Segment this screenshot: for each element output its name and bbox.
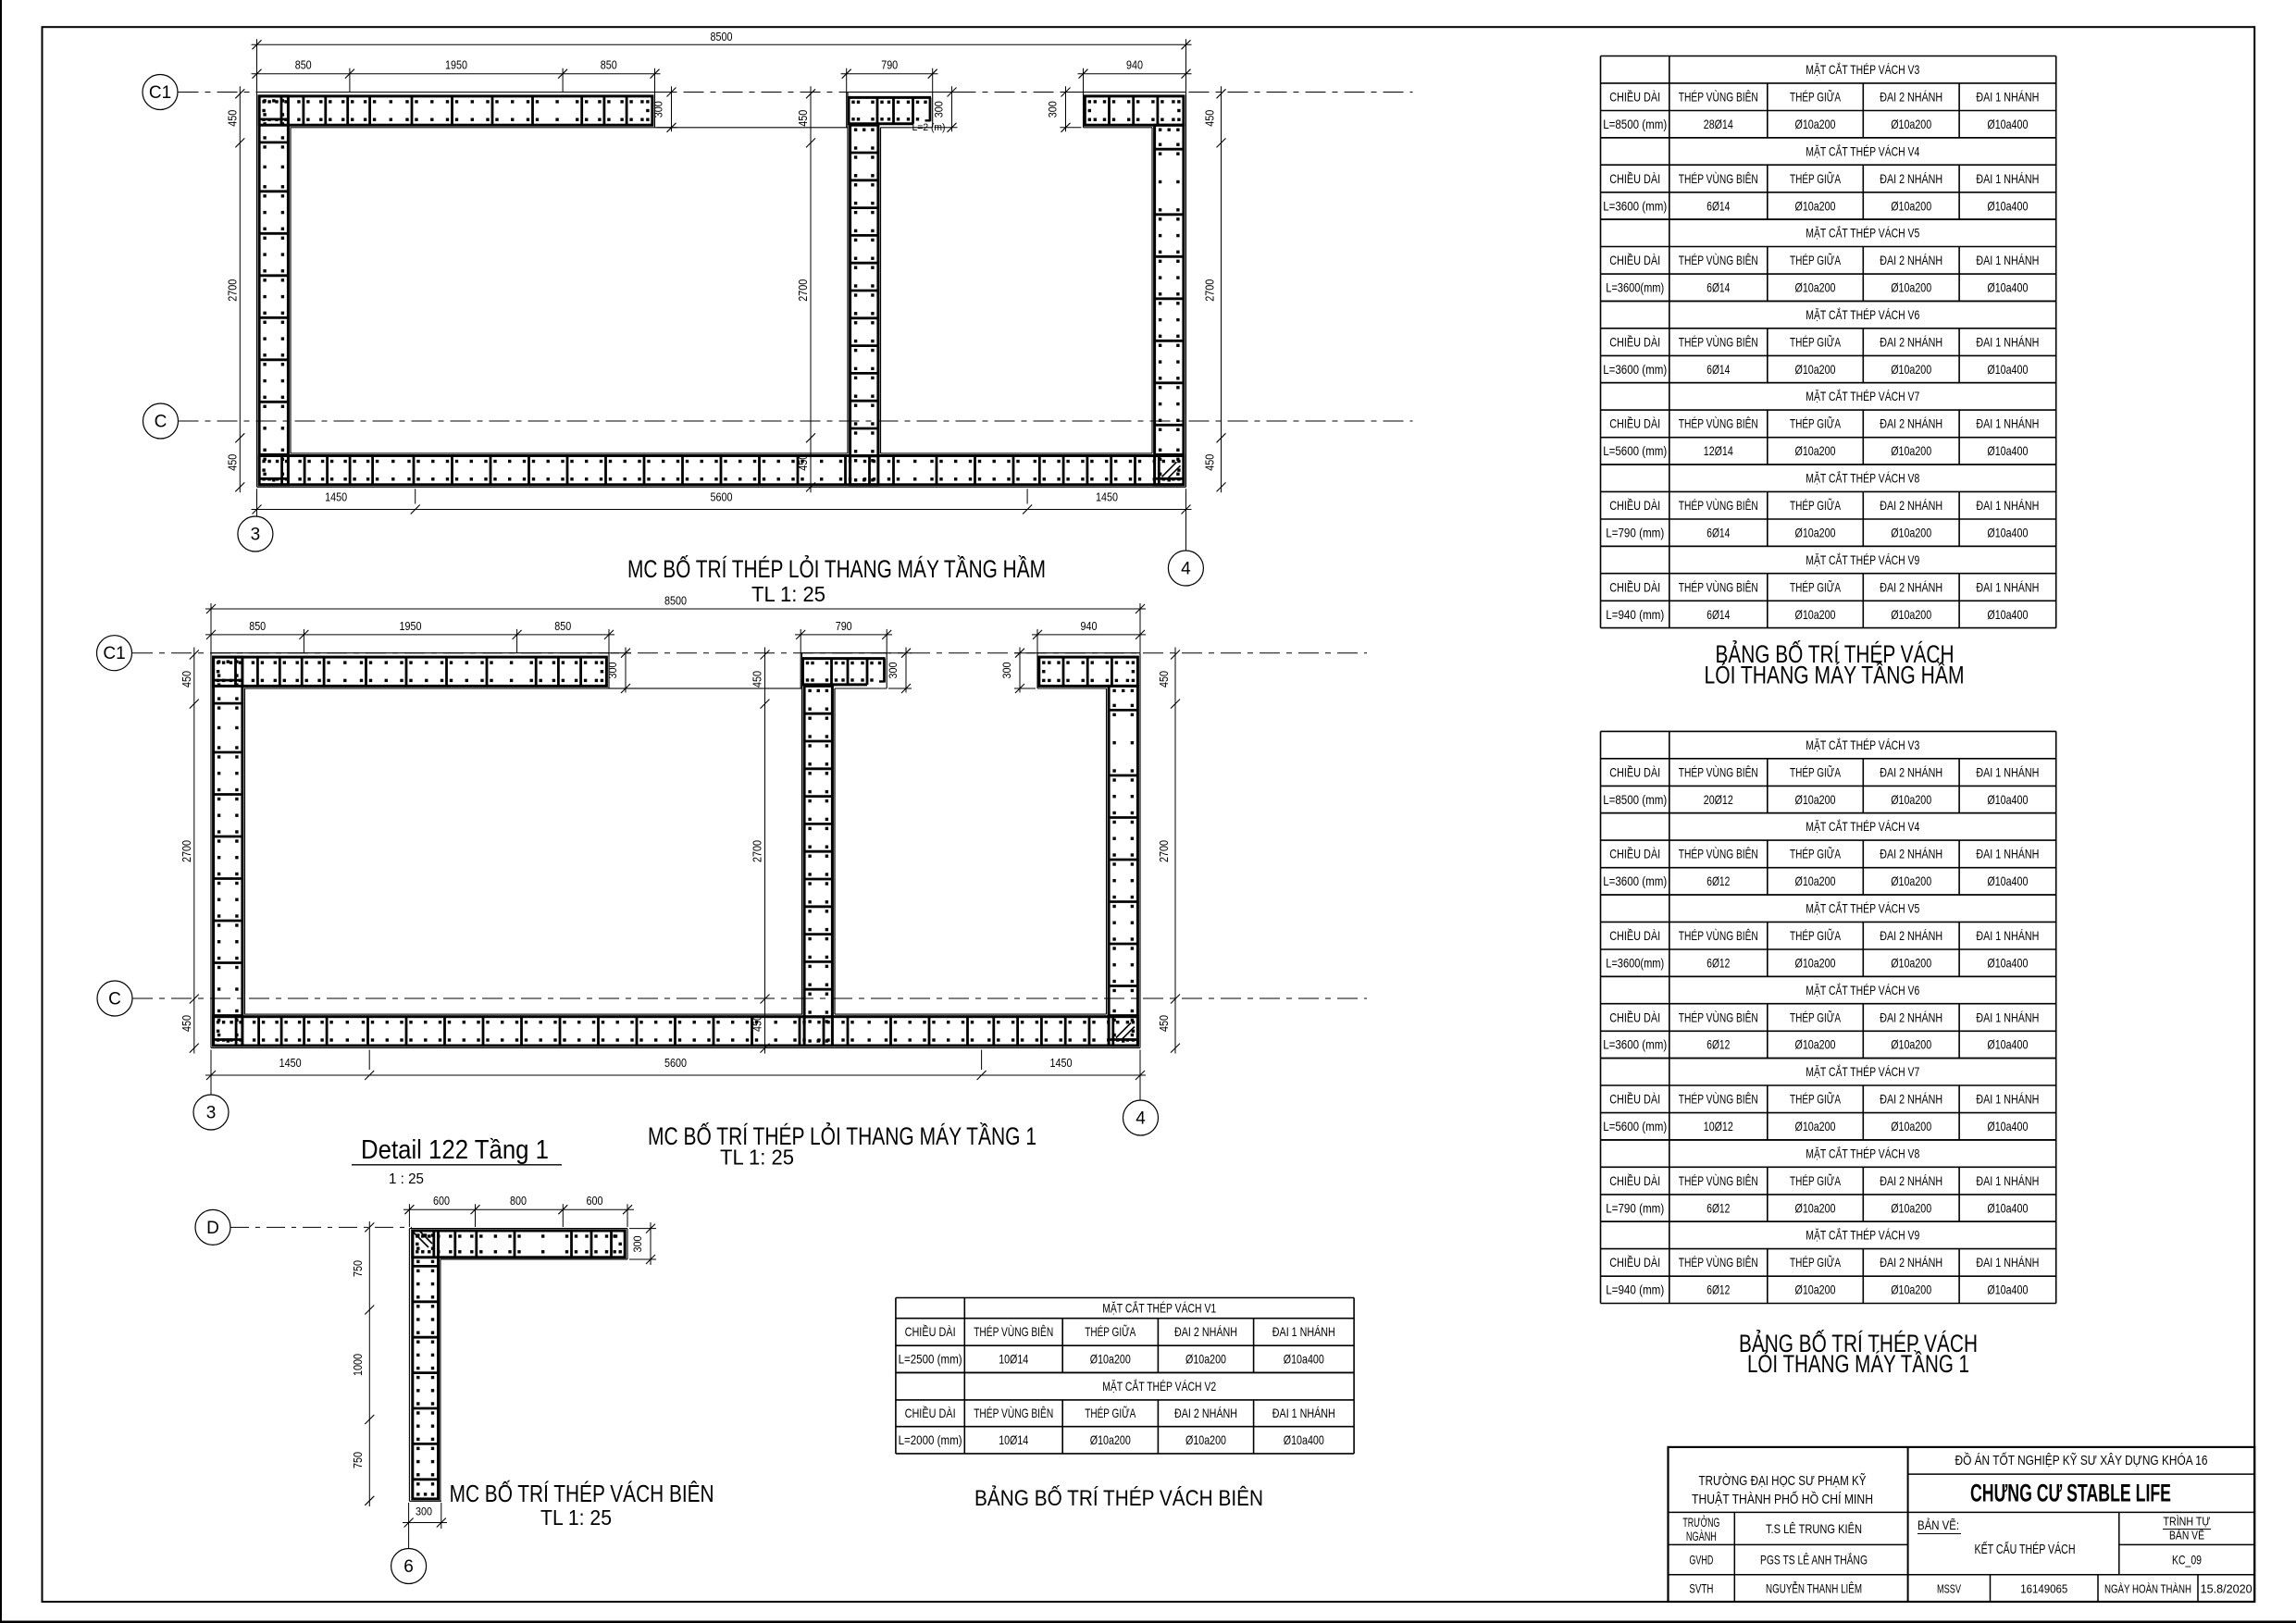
svg-text:TL 1: 25: TL 1: 25 [720,1146,794,1170]
svg-text:Ø10a200: Ø10a200 [1891,362,1931,377]
svg-text:L=2 (m): L=2 (m) [912,122,946,133]
svg-text:Ø10a200: Ø10a200 [1795,955,1836,970]
svg-text:CHIỀU DÀI: CHIỀU DÀI [1609,171,1660,186]
svg-text:16149065: 16149065 [2020,1583,2067,1596]
svg-text:2700: 2700 [180,840,193,862]
svg-text:8500: 8500 [711,31,733,43]
svg-text:ĐAI 2 NHÁNH: ĐAI 2 NHÁNH [1880,498,1942,513]
svg-text:MẶT CẮT THÉP VÁCH V6: MẶT CẮT THÉP VÁCH V6 [1806,982,1919,997]
svg-text:ĐAI 1 NHÁNH: ĐAI 1 NHÁNH [1976,579,2039,594]
svg-text:MẶT CẮT THÉP VÁCH V7: MẶT CẮT THÉP VÁCH V7 [1806,388,1919,403]
svg-text:MC BỐ TRÍ THÉP LỎI THANG MÁY T: MC BỐ TRÍ THÉP LỎI THANG MÁY TẦNG 1 [648,1121,1036,1150]
svg-text:940: 940 [1126,59,1143,72]
svg-text:THÉP GIỮA: THÉP GIỮA [1790,90,1841,105]
svg-text:750: 750 [352,1260,365,1277]
svg-text:Ø10a400: Ø10a400 [1987,198,2028,213]
svg-text:C1: C1 [149,83,171,103]
svg-text:THÉP VÙNG BIÊN: THÉP VÙNG BIÊN [974,1406,1053,1420]
svg-text:MẶT CẮT THÉP VÁCH V8: MẶT CẮT THÉP VÁCH V8 [1806,470,1919,486]
svg-text:Ø10a200: Ø10a200 [1795,1200,1836,1215]
svg-text:ĐAI 1 NHÁNH: ĐAI 1 NHÁNH [1976,1092,2039,1107]
svg-text:6Ø14: 6Ø14 [1706,362,1730,377]
svg-text:Ø10a400: Ø10a400 [1987,1200,2028,1215]
svg-text:1950: 1950 [445,59,467,72]
svg-text:THÉP VÙNG BIÊN: THÉP VÙNG BIÊN [1679,253,1758,267]
svg-text:THÉP GIỮA: THÉP GIỮA [1790,1010,1841,1024]
svg-text:ĐAI 2 NHÁNH: ĐAI 2 NHÁNH [1880,1092,1942,1107]
svg-text:Ø10a200: Ø10a200 [1795,1037,1836,1052]
svg-text:THÉP VÙNG BIÊN: THÉP VÙNG BIÊN [1679,764,1758,779]
svg-text:600: 600 [433,1195,450,1208]
svg-text:TL 1: 25: TL 1: 25 [751,582,825,606]
svg-text:KẾT CẤU THÉP VÁCH: KẾT CẤU THÉP VÁCH [1975,1542,2076,1557]
svg-text:L=3600 (mm): L=3600 (mm) [1603,362,1667,377]
svg-text:Ø10a200: Ø10a200 [1090,1432,1131,1447]
svg-text:Ø10a400: Ø10a400 [1987,955,2028,970]
svg-text:ĐAI 2 NHÁNH: ĐAI 2 NHÁNH [1880,1255,1942,1270]
svg-text:6Ø14: 6Ø14 [1706,280,1730,295]
svg-text:THÉP VÙNG BIÊN: THÉP VÙNG BIÊN [1679,928,1758,943]
svg-text:1450: 1450 [279,1057,302,1070]
svg-text:Ø10a200: Ø10a200 [1795,1119,1836,1134]
svg-text:CHƯNG CƯ STABLE LIFE: CHƯNG CƯ STABLE LIFE [1970,1480,2171,1507]
svg-text:NGÀNH: NGÀNH [1686,1530,1717,1543]
svg-text:THÉP VÙNG BIÊN: THÉP VÙNG BIÊN [1679,1173,1758,1188]
svg-text:MC BỐ TRÍ THÉP LỎI THANG MÁY T: MC BỐ TRÍ THÉP LỎI THANG MÁY TẦNG HẦM [627,553,1046,583]
svg-text:Ø10a200: Ø10a200 [1795,792,1836,807]
svg-text:850: 850 [295,59,312,72]
svg-text:Ø10a200: Ø10a200 [1891,198,1931,213]
svg-text:450: 450 [1158,671,1171,688]
svg-text:6Ø12: 6Ø12 [1706,873,1730,888]
svg-text:Ø10a200: Ø10a200 [1090,1352,1131,1367]
svg-text:Ø10a200: Ø10a200 [1891,1282,1931,1297]
svg-text:BẢN VẼ:: BẢN VẼ: [1917,1518,1959,1532]
svg-text:ĐAI 1 NHÁNH: ĐAI 1 NHÁNH [1976,253,2039,267]
svg-text:Detail 122 Tầng 1: Detail 122 Tầng 1 [361,1135,549,1165]
svg-text:Ø10a400: Ø10a400 [1987,280,2028,295]
svg-text:BẢN VẼ: BẢN VẼ [2169,1529,2204,1542]
svg-text:300: 300 [654,101,665,118]
svg-text:1950: 1950 [400,620,422,633]
svg-text:790: 790 [836,620,852,633]
svg-text:L=5600 (mm): L=5600 (mm) [1603,443,1667,458]
svg-text:THÉP VÙNG BIÊN: THÉP VÙNG BIÊN [1679,1092,1758,1107]
svg-text:Ø10a400: Ø10a400 [1987,873,2028,888]
svg-text:850: 850 [554,620,571,633]
svg-text:10Ø12: 10Ø12 [1704,1119,1733,1134]
svg-text:5600: 5600 [711,491,733,504]
svg-text:8500: 8500 [664,595,687,608]
svg-text:MẶT CẮT THÉP VÁCH V3: MẶT CẮT THÉP VÁCH V3 [1806,61,1919,77]
svg-text:NGUYỄN THANH LIÊM: NGUYỄN THANH LIÊM [1766,1581,1862,1596]
svg-text:L=2500 (mm): L=2500 (mm) [899,1352,962,1367]
svg-text:MẶT CẮT THÉP VÁCH V4: MẶT CẮT THÉP VÁCH V4 [1806,818,1919,834]
svg-text:12Ø14: 12Ø14 [1704,443,1733,458]
svg-text:Ø10a400: Ø10a400 [1987,117,2028,131]
svg-text:15.8/2020: 15.8/2020 [2201,1583,2253,1596]
svg-text:Ø10a400: Ø10a400 [1987,1282,2028,1297]
svg-text:C: C [108,990,121,1010]
svg-text:MẶT CẮT THÉP VÁCH V7: MẶT CẮT THÉP VÁCH V7 [1806,1063,1919,1079]
svg-text:THÉP GIỮA: THÉP GIỮA [1790,416,1841,431]
svg-text:2700: 2700 [797,279,810,302]
svg-text:ĐAI 1 NHÁNH: ĐAI 1 NHÁNH [1976,928,2039,943]
svg-text:MC BỐ TRÍ THÉP VÁCH BIÊN: MC BỐ TRÍ THÉP VÁCH BIÊN [450,1480,714,1507]
svg-text:THÉP VÙNG BIÊN: THÉP VÙNG BIÊN [1679,416,1758,431]
svg-text:THÉP VÙNG BIÊN: THÉP VÙNG BIÊN [1679,334,1758,349]
svg-text:MẶT CẮT THÉP VÁCH V3: MẶT CẮT THÉP VÁCH V3 [1806,737,1919,752]
svg-text:450: 450 [797,110,810,127]
svg-text:T.S LÊ TRUNG KIÊN: T.S LÊ TRUNG KIÊN [1766,1521,1862,1536]
svg-text:850: 850 [249,620,266,633]
svg-text:750: 750 [352,1452,365,1468]
svg-text:ĐAI 1 NHÁNH: ĐAI 1 NHÁNH [1976,171,2039,186]
svg-text:THÉP VÙNG BIÊN: THÉP VÙNG BIÊN [1679,1010,1758,1024]
svg-text:LỎI THANG MÁY TẦNG HẦM: LỎI THANG MÁY TẦNG HẦM [1705,660,1965,689]
svg-text:ĐAI 2 NHÁNH: ĐAI 2 NHÁNH [1880,416,1942,431]
svg-text:CHIỀU DÀI: CHIỀU DÀI [1609,1173,1660,1188]
svg-text:Ø10a400: Ø10a400 [1987,792,2028,807]
svg-text:Ø10a200: Ø10a200 [1891,1200,1931,1215]
svg-text:ĐAI 2 NHÁNH: ĐAI 2 NHÁNH [1880,334,1942,349]
svg-text:THÉP GIỮA: THÉP GIỮA [1790,928,1841,943]
svg-text:Ø10a200: Ø10a200 [1185,1352,1226,1367]
svg-text:L=3600 (mm): L=3600 (mm) [1603,198,1667,213]
svg-text:Ø10a400: Ø10a400 [1987,362,2028,377]
svg-text:ĐAI 1 NHÁNH: ĐAI 1 NHÁNH [1976,1173,2039,1188]
svg-text:940: 940 [1081,620,1098,633]
svg-text:6Ø12: 6Ø12 [1706,1200,1730,1215]
svg-text:Ø10a200: Ø10a200 [1795,198,1836,213]
svg-text:L=3600(mm): L=3600(mm) [1606,280,1664,295]
svg-text:MẶT CẮT THÉP VÁCH V9: MẶT CẮT THÉP VÁCH V9 [1806,1227,1919,1243]
svg-text:ĐỒ ÁN TỐT NGHIỆP KỸ SƯ XÂY DỰN: ĐỒ ÁN TỐT NGHIỆP KỸ SƯ XÂY DỰNG KHÓA 16 [1955,1452,2208,1468]
svg-text:ĐAI 1 NHÁNH: ĐAI 1 NHÁNH [1272,1406,1335,1420]
svg-text:10Ø14: 10Ø14 [999,1352,1028,1367]
svg-text:300: 300 [1002,663,1013,679]
svg-text:ĐAI 1 NHÁNH: ĐAI 1 NHÁNH [1976,334,2039,349]
svg-text:L=790 (mm): L=790 (mm) [1606,526,1664,540]
svg-text:2700: 2700 [751,840,764,862]
svg-text:THÉP GIỮA: THÉP GIỮA [1790,334,1841,349]
svg-text:L=2000 (mm): L=2000 (mm) [899,1432,962,1447]
svg-text:Ø10a200: Ø10a200 [1891,443,1931,458]
svg-text:ĐAI 2 NHÁNH: ĐAI 2 NHÁNH [1880,764,1942,779]
svg-text:Ø10a200: Ø10a200 [1185,1432,1226,1447]
svg-text:Ø10a200: Ø10a200 [1891,117,1931,131]
svg-text:THÉP GIỮA: THÉP GIỮA [1790,764,1841,779]
svg-text:Ø10a200: Ø10a200 [1891,792,1931,807]
svg-text:ĐAI 2 NHÁNH: ĐAI 2 NHÁNH [1174,1406,1237,1420]
svg-text:THÉP GIỮA: THÉP GIỮA [1085,1324,1136,1339]
svg-text:TL 1: 25: TL 1: 25 [540,1505,612,1530]
svg-text:C1: C1 [103,644,125,663]
svg-text:6Ø14: 6Ø14 [1706,607,1730,622]
svg-text:THUẬT THÀNH PHỐ HỒ CHÍ MINH: THUẬT THÀNH PHỐ HỒ CHÍ MINH [1692,1491,1873,1507]
svg-text:MẶT CẮT THÉP VÁCH V5: MẶT CẮT THÉP VÁCH V5 [1806,900,1919,916]
svg-text:4: 4 [1181,560,1191,579]
svg-text:MẶT CẮT THÉP VÁCH V9: MẶT CẮT THÉP VÁCH V9 [1806,551,1919,567]
svg-text:Ø10a400: Ø10a400 [1987,443,2028,458]
svg-text:L=8500 (mm): L=8500 (mm) [1603,117,1667,131]
svg-text:Ø10a200: Ø10a200 [1795,873,1836,888]
svg-text:600: 600 [587,1195,603,1208]
svg-text:450: 450 [1204,454,1217,471]
svg-text:ĐAI 1 NHÁNH: ĐAI 1 NHÁNH [1976,764,2039,779]
svg-text:1000: 1000 [352,1354,365,1376]
svg-text:CHIỀU DÀI: CHIỀU DÀI [1609,847,1660,861]
svg-text:CHIỀU DÀI: CHIỀU DÀI [1609,90,1660,105]
svg-text:THÉP VÙNG BIÊN: THÉP VÙNG BIÊN [1679,171,1758,186]
svg-text:790: 790 [881,59,898,72]
svg-text:Ø10a200: Ø10a200 [1891,280,1931,295]
svg-text:Ø10a200: Ø10a200 [1795,117,1836,131]
svg-text:450: 450 [751,671,764,688]
svg-text:LỎI THANG MÁY TẦNG 1: LỎI THANG MÁY TẦNG 1 [1747,1348,1969,1378]
svg-text:THÉP GIỮA: THÉP GIỮA [1790,498,1841,513]
svg-text:450: 450 [1204,110,1217,127]
svg-text:450: 450 [180,671,193,688]
svg-text:PGS TS LÊ ANH THẮNG: PGS TS LÊ ANH THẮNG [1760,1552,1868,1567]
svg-text:MẶT CẮT THÉP VÁCH V2: MẶT CẮT THÉP VÁCH V2 [1102,1378,1216,1394]
svg-text:THÉP GIỮA: THÉP GIỮA [1085,1406,1136,1420]
svg-text:Ø10a200: Ø10a200 [1891,955,1931,970]
svg-text:450: 450 [797,454,810,471]
svg-text:Ø10a400: Ø10a400 [1987,526,2028,540]
svg-text:6: 6 [403,1557,414,1577]
svg-text:Ø10a200: Ø10a200 [1795,526,1836,540]
svg-text:CHIỀU DÀI: CHIỀU DÀI [1609,498,1660,513]
svg-text:850: 850 [601,59,617,72]
svg-text:MẶT CẮT THÉP VÁCH V5: MẶT CẮT THÉP VÁCH V5 [1806,225,1919,241]
svg-text:ĐAI 1 NHÁNH: ĐAI 1 NHÁNH [1272,1324,1335,1339]
svg-text:20Ø12: 20Ø12 [1704,792,1733,807]
svg-text:450: 450 [180,1015,193,1032]
svg-text:CHIỀU DÀI: CHIỀU DÀI [1609,334,1660,349]
svg-text:L=3600 (mm): L=3600 (mm) [1603,873,1667,888]
svg-text:Ø10a400: Ø10a400 [1987,1037,2028,1052]
svg-text:THÉP GIỮA: THÉP GIỮA [1790,579,1841,594]
svg-text:THÉP VÙNG BIÊN: THÉP VÙNG BIÊN [1679,579,1758,594]
svg-text:Ø10a200: Ø10a200 [1795,607,1836,622]
svg-text:MẶT CẮT THÉP VÁCH V8: MẶT CẮT THÉP VÁCH V8 [1806,1145,1919,1160]
svg-text:6Ø12: 6Ø12 [1706,1037,1730,1052]
svg-text:MẶT CẮT THÉP VÁCH V4: MẶT CẮT THÉP VÁCH V4 [1806,142,1919,158]
svg-text:NGÀY HOÀN THÀNH: NGÀY HOÀN THÀNH [2104,1582,2191,1596]
svg-text:CHIỀU DÀI: CHIỀU DÀI [1609,253,1660,267]
svg-text:THÉP GIỮA: THÉP GIỮA [1790,1255,1841,1270]
svg-text:3: 3 [251,526,261,545]
svg-text:800: 800 [510,1195,527,1208]
svg-text:THÉP VÙNG BIÊN: THÉP VÙNG BIÊN [1679,498,1758,513]
svg-text:MẶT CẮT THÉP VÁCH V6: MẶT CẮT THÉP VÁCH V6 [1806,306,1919,322]
svg-text:C: C [155,413,168,432]
svg-text:2700: 2700 [226,279,239,302]
svg-text:L=3600 (mm): L=3600 (mm) [1603,1037,1667,1052]
svg-text:ĐAI 2 NHÁNH: ĐAI 2 NHÁNH [1880,1173,1942,1188]
svg-text:Ø10a400: Ø10a400 [1987,1119,2028,1134]
svg-text:Ø10a400: Ø10a400 [1284,1432,1324,1447]
svg-text:CHIỀU DÀI: CHIỀU DÀI [905,1324,956,1339]
svg-text:3: 3 [206,1104,217,1123]
svg-text:L=8500 (mm): L=8500 (mm) [1603,792,1667,807]
svg-text:GVHD: GVHD [1689,1554,1713,1567]
svg-text:ĐAI 1 NHÁNH: ĐAI 1 NHÁNH [1976,416,2039,431]
svg-text:10Ø14: 10Ø14 [999,1432,1028,1447]
svg-text:300: 300 [633,1236,644,1253]
svg-text:THÉP GIỮA: THÉP GIỮA [1790,1092,1841,1107]
svg-text:ĐAI 1 NHÁNH: ĐAI 1 NHÁNH [1976,90,2039,105]
svg-text:CHIỀU DÀI: CHIỀU DÀI [1609,1255,1660,1270]
svg-text:Ø10a200: Ø10a200 [1891,526,1931,540]
svg-text:L=5600 (mm): L=5600 (mm) [1603,1119,1667,1134]
svg-text:450: 450 [751,1015,764,1032]
svg-text:Ø10a200: Ø10a200 [1795,362,1836,377]
svg-text:ĐAI 2 NHÁNH: ĐAI 2 NHÁNH [1880,253,1942,267]
svg-text:TRƯỞNG: TRƯỞNG [1682,1516,1719,1530]
svg-text:ĐAI 1 NHÁNH: ĐAI 1 NHÁNH [1976,1255,2039,1270]
svg-text:4: 4 [1136,1109,1146,1129]
svg-text:CHIỀU DÀI: CHIỀU DÀI [1609,1010,1660,1024]
svg-text:THÉP VÙNG BIÊN: THÉP VÙNG BIÊN [1679,847,1758,861]
svg-text:ĐAI 2 NHÁNH: ĐAI 2 NHÁNH [1880,928,1942,943]
svg-text:THÉP GIỮA: THÉP GIỮA [1790,847,1841,861]
svg-text:Ø10a200: Ø10a200 [1795,1282,1836,1297]
svg-text:1450: 1450 [325,491,347,504]
svg-text:Ø10a200: Ø10a200 [1795,280,1836,295]
svg-text:ĐAI 2 NHÁNH: ĐAI 2 NHÁNH [1880,579,1942,594]
svg-text:ĐAI 2 NHÁNH: ĐAI 2 NHÁNH [1880,847,1942,861]
svg-text:450: 450 [226,110,239,127]
svg-text:L=940 (mm): L=940 (mm) [1606,1282,1664,1297]
svg-text:THÉP GIỮA: THÉP GIỮA [1790,253,1841,267]
svg-text:D: D [206,1219,219,1238]
svg-text:ĐAI 1 NHÁNH: ĐAI 1 NHÁNH [1976,498,2039,513]
svg-text:300: 300 [888,663,900,679]
svg-text:ĐAI 1 NHÁNH: ĐAI 1 NHÁNH [1976,847,2039,861]
svg-text:5600: 5600 [664,1057,687,1070]
svg-text:THÉP GIỮA: THÉP GIỮA [1790,1173,1841,1188]
svg-text:300: 300 [935,101,946,118]
svg-text:THÉP VÙNG BIÊN: THÉP VÙNG BIÊN [1679,1255,1758,1270]
svg-text:CHIỀU DÀI: CHIỀU DÀI [1609,1092,1660,1107]
svg-text:Ø10a400: Ø10a400 [1284,1352,1324,1367]
svg-text:2700: 2700 [1158,840,1171,862]
svg-text:450: 450 [226,454,239,471]
svg-text:Ø10a200: Ø10a200 [1891,607,1931,622]
svg-text:ĐAI 1 NHÁNH: ĐAI 1 NHÁNH [1976,1010,2039,1024]
svg-text:SVTH: SVTH [1689,1582,1713,1596]
svg-text:L=790 (mm): L=790 (mm) [1606,1200,1664,1215]
svg-text:CHIỀU DÀI: CHIỀU DÀI [905,1406,956,1420]
svg-text:MẶT CẮT THÉP VÁCH V1: MẶT CẮT THÉP VÁCH V1 [1102,1299,1216,1315]
svg-text:Ø10a200: Ø10a200 [1891,1037,1931,1052]
svg-text:1450: 1450 [1096,491,1118,504]
svg-text:TRƯỜNG ĐẠI HỌC SƯ PHẠM KỸ: TRƯỜNG ĐẠI HỌC SƯ PHẠM KỸ [1699,1473,1867,1489]
svg-text:1 : 25: 1 : 25 [389,1171,424,1187]
svg-text:300: 300 [416,1507,432,1518]
svg-text:CHIỀU DÀI: CHIỀU DÀI [1609,928,1660,943]
svg-text:Ø10a400: Ø10a400 [1987,607,2028,622]
svg-text:TRÌNH TỰ: TRÌNH TỰ [2164,1515,2211,1529]
svg-text:6Ø12: 6Ø12 [1706,1282,1730,1297]
svg-text:6Ø14: 6Ø14 [1706,526,1730,540]
svg-text:450: 450 [1158,1015,1171,1032]
svg-text:Ø10a200: Ø10a200 [1891,873,1931,888]
svg-text:ĐAI 2 NHÁNH: ĐAI 2 NHÁNH [1880,90,1942,105]
svg-text:L=3600(mm): L=3600(mm) [1606,955,1664,970]
svg-text:CHIỀU DÀI: CHIỀU DÀI [1609,579,1660,594]
svg-text:28Ø14: 28Ø14 [1704,117,1733,131]
svg-text:KC_09: KC_09 [2172,1553,2202,1567]
svg-text:300: 300 [1049,101,1060,118]
svg-text:THÉP VÙNG BIÊN: THÉP VÙNG BIÊN [974,1324,1053,1339]
svg-text:L=940 (mm): L=940 (mm) [1606,607,1664,622]
svg-text:Ø10a200: Ø10a200 [1795,443,1836,458]
svg-text:THÉP VÙNG BIÊN: THÉP VÙNG BIÊN [1679,90,1758,105]
svg-text:CHIỀU DÀI: CHIỀU DÀI [1609,416,1660,431]
svg-text:300: 300 [608,663,619,679]
svg-text:MSSV: MSSV [1937,1583,1961,1596]
svg-text:Ø10a200: Ø10a200 [1891,1119,1931,1134]
svg-text:ĐAI 2 NHÁNH: ĐAI 2 NHÁNH [1880,171,1942,186]
svg-text:6Ø12: 6Ø12 [1706,955,1730,970]
svg-text:THÉP GIỮA: THÉP GIỮA [1790,171,1841,186]
svg-text:2700: 2700 [1204,279,1217,302]
svg-text:ĐAI 2 NHÁNH: ĐAI 2 NHÁNH [1880,1010,1942,1024]
svg-text:1450: 1450 [1050,1057,1073,1070]
svg-text:ĐAI 2 NHÁNH: ĐAI 2 NHÁNH [1174,1324,1237,1339]
svg-text:6Ø14: 6Ø14 [1706,198,1730,213]
svg-text:CHIỀU DÀI: CHIỀU DÀI [1609,764,1660,779]
svg-text:BẢNG BỐ TRÍ THÉP VÁCH BIÊN: BẢNG BỐ TRÍ THÉP VÁCH BIÊN [974,1484,1263,1511]
